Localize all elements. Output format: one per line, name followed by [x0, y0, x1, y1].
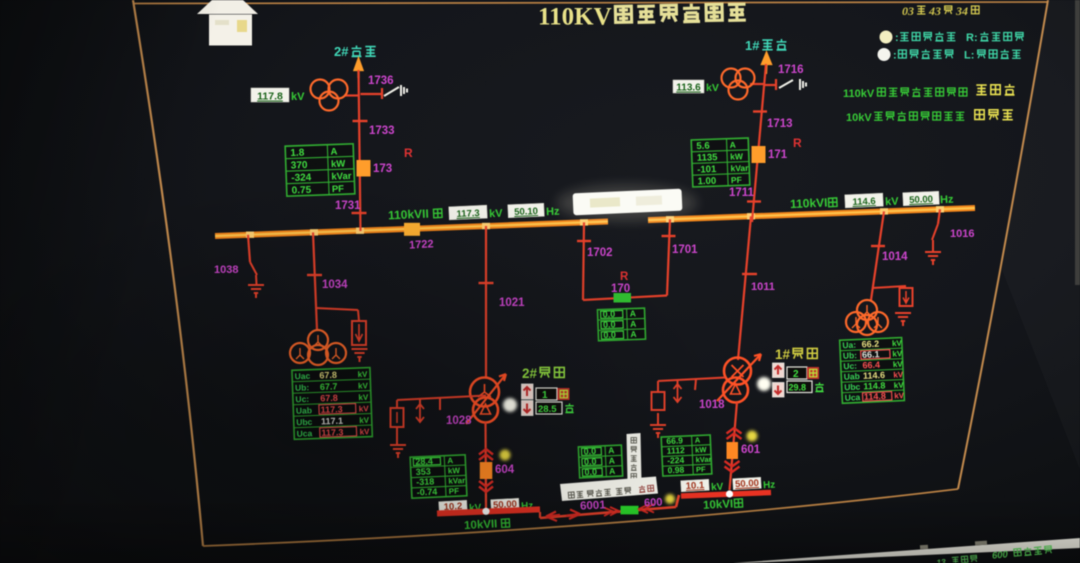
svg-text:A: A	[730, 140, 736, 150]
svg-text:A: A	[695, 436, 701, 445]
svg-text:1713: 1713	[767, 118, 793, 130]
svg-text:kV: kV	[893, 370, 904, 379]
svg-text:A: A	[447, 456, 453, 465]
svg-text:kV: kV	[489, 208, 504, 221]
svg-text:50.00: 50.00	[909, 194, 933, 206]
svg-text:117.3: 117.3	[456, 208, 480, 220]
svg-text:113.6: 113.6	[676, 83, 701, 94]
svg-text:1701: 1701	[672, 244, 698, 256]
svg-text:Uca: Uca	[296, 428, 312, 439]
svg-text:1.8: 1.8	[290, 148, 305, 159]
svg-text:353: 353	[416, 466, 431, 477]
svg-text:1034: 1034	[322, 279, 348, 291]
svg-text:Ua:: Ua:	[842, 340, 856, 351]
svg-text:170: 170	[611, 283, 630, 295]
svg-text:kV: kV	[359, 427, 370, 436]
svg-text::: :	[893, 50, 897, 62]
svg-text:Uab: Uab	[296, 405, 312, 416]
svg-text:kV: kV	[706, 82, 719, 94]
svg-text:kV: kV	[894, 381, 905, 390]
svg-text:114.8: 114.8	[863, 380, 885, 391]
svg-text:66.1: 66.1	[862, 349, 880, 360]
svg-text:10.1: 10.1	[685, 480, 705, 492]
svg-text:Hz: Hz	[546, 206, 560, 219]
svg-text:kVar: kVar	[730, 163, 749, 174]
svg-text:0.0: 0.0	[603, 330, 616, 340]
svg-text:PF: PF	[449, 487, 460, 496]
svg-text:50.00: 50.00	[735, 478, 759, 490]
svg-text:1.00: 1.00	[697, 176, 716, 188]
svg-text:kV: kV	[892, 349, 903, 358]
svg-text:1#: 1#	[775, 347, 791, 362]
svg-text:67.7: 67.7	[320, 381, 338, 392]
svg-text:1014: 1014	[882, 251, 908, 263]
svg-text:1028: 1028	[446, 415, 472, 427]
svg-text:-324: -324	[291, 172, 312, 184]
svg-text:66.4: 66.4	[862, 360, 880, 371]
svg-text:Ub:: Ub:	[843, 350, 858, 361]
svg-text:173: 173	[373, 163, 392, 175]
svg-text:1135: 1135	[697, 152, 719, 164]
svg-text:28.4: 28.4	[415, 456, 433, 467]
svg-text:110kVII: 110kVII	[388, 207, 429, 223]
svg-text:Hz: Hz	[763, 480, 776, 492]
svg-text:110KV: 110KV	[538, 4, 612, 31]
svg-text:604: 604	[495, 464, 515, 476]
svg-text:1711: 1711	[729, 187, 755, 199]
svg-text:kV: kV	[711, 482, 724, 494]
svg-text:kVar: kVar	[695, 455, 711, 465]
svg-text:2: 2	[793, 369, 799, 380]
svg-text:A: A	[609, 466, 616, 476]
svg-text:66.2: 66.2	[861, 339, 879, 350]
svg-text:A: A	[630, 308, 636, 318]
svg-text:114.6: 114.6	[863, 370, 885, 381]
svg-text:kV: kV	[291, 91, 305, 103]
svg-text:601: 601	[741, 444, 761, 456]
svg-text:A: A	[330, 146, 337, 157]
svg-text:R:: R:	[966, 32, 978, 44]
svg-text:34: 34	[955, 4, 968, 18]
svg-text:114.8: 114.8	[864, 391, 886, 402]
svg-text:Uab: Uab	[844, 371, 860, 382]
svg-text:kV: kV	[358, 393, 369, 402]
svg-text:kW: kW	[695, 445, 708, 455]
svg-text:110kVI: 110kVI	[790, 195, 828, 211]
svg-text:600: 600	[992, 549, 1009, 561]
svg-text:PF: PF	[332, 184, 345, 195]
svg-text:1#: 1#	[745, 38, 760, 53]
svg-text:1038: 1038	[214, 264, 238, 276]
svg-text:10kVI: 10kVI	[703, 498, 734, 512]
svg-text:-0.74: -0.74	[416, 487, 437, 498]
svg-text:kV: kV	[359, 416, 370, 425]
svg-text:Uc:: Uc:	[843, 361, 857, 372]
svg-text:171: 171	[768, 149, 788, 161]
svg-text:13.: 13.	[936, 557, 949, 563]
svg-text:PF: PF	[731, 175, 742, 185]
svg-text:R: R	[404, 146, 413, 160]
svg-text:0.0: 0.0	[603, 319, 616, 329]
svg-text:kV: kV	[357, 370, 368, 379]
svg-text:67.8: 67.8	[320, 393, 338, 404]
svg-text:117.1: 117.1	[321, 416, 343, 427]
svg-text:370: 370	[291, 160, 308, 172]
svg-text:03: 03	[902, 4, 914, 18]
svg-text:1733: 1733	[369, 125, 395, 137]
svg-text:PF: PF	[696, 465, 706, 474]
svg-text:kW: kW	[331, 159, 346, 170]
svg-text:L:: L:	[964, 50, 974, 62]
svg-text::: :	[895, 32, 899, 44]
svg-text:kV: kV	[894, 391, 905, 400]
svg-text:A: A	[608, 445, 615, 455]
svg-text:1716: 1716	[778, 64, 804, 76]
svg-text:1722: 1722	[409, 238, 434, 251]
svg-text:2#: 2#	[334, 44, 349, 59]
svg-text:0.0: 0.0	[602, 309, 615, 319]
svg-text:kV: kV	[358, 381, 369, 390]
svg-text:67.8: 67.8	[319, 370, 337, 381]
svg-text:6001: 6001	[580, 499, 607, 512]
svg-text:kVar: kVar	[331, 171, 352, 183]
svg-text:kW: kW	[448, 466, 461, 476]
svg-text:kW: kW	[730, 151, 744, 161]
svg-text:10kVII: 10kVII	[464, 518, 498, 532]
svg-text:1: 1	[542, 390, 548, 401]
svg-text:2#: 2#	[522, 366, 538, 381]
svg-text:A: A	[630, 319, 636, 329]
svg-text:Uc:: Uc:	[295, 394, 309, 404]
svg-text:kVar: kVar	[448, 476, 465, 486]
svg-text:1731: 1731	[335, 200, 361, 212]
svg-text:R: R	[620, 271, 629, 283]
svg-text:117.3: 117.3	[320, 404, 342, 415]
svg-text:43: 43	[928, 4, 941, 18]
svg-text:Ub:: Ub:	[295, 382, 310, 392]
svg-text:1736: 1736	[368, 75, 394, 87]
svg-text:kV: kV	[885, 196, 900, 209]
svg-text:-318: -318	[416, 476, 434, 487]
svg-text:1018: 1018	[699, 399, 725, 411]
svg-text:110kV: 110kV	[843, 88, 875, 100]
svg-text:Hz: Hz	[940, 194, 954, 207]
svg-text:114.6: 114.6	[852, 196, 876, 208]
svg-text:1021: 1021	[499, 297, 525, 309]
svg-text:A: A	[608, 456, 615, 466]
svg-text:5.6: 5.6	[696, 141, 710, 152]
svg-text:A: A	[630, 329, 636, 339]
svg-text:Ubc: Ubc	[296, 417, 313, 428]
svg-text:0.75: 0.75	[292, 185, 312, 197]
svg-text:28.5: 28.5	[538, 404, 557, 415]
svg-text:0.0: 0.0	[584, 467, 597, 478]
svg-text:Uca: Uca	[844, 392, 860, 403]
svg-text:R: R	[793, 136, 802, 150]
svg-text:0.0: 0.0	[584, 456, 597, 467]
svg-text:10kV: 10kV	[846, 112, 872, 124]
svg-text:50.10: 50.10	[514, 206, 538, 218]
svg-text:Ubc: Ubc	[844, 382, 861, 393]
svg-text:1702: 1702	[587, 247, 613, 259]
svg-text:Uac: Uac	[294, 371, 310, 382]
svg-text:0.0: 0.0	[583, 446, 596, 457]
svg-text:29.8: 29.8	[789, 383, 807, 393]
svg-text:117.3: 117.3	[321, 427, 343, 438]
svg-text:0.98: 0.98	[667, 465, 684, 476]
svg-text:kV: kV	[893, 360, 904, 369]
svg-text:117.8: 117.8	[257, 91, 283, 103]
svg-text:600: 600	[644, 496, 663, 509]
svg-text:1016: 1016	[950, 228, 974, 240]
svg-text:kV: kV	[359, 404, 370, 413]
svg-text:1011: 1011	[751, 281, 775, 293]
svg-text:-101: -101	[697, 164, 717, 176]
svg-text:kV: kV	[892, 339, 903, 348]
